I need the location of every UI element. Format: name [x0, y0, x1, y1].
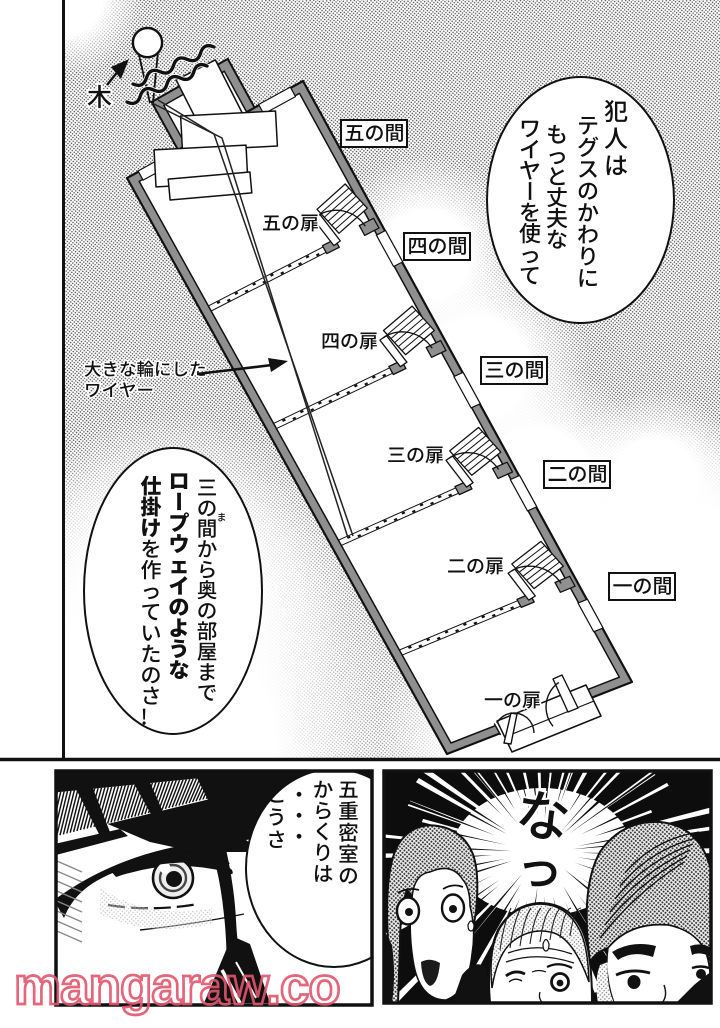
svg-text:mangaraw.co: mangaraw.co	[14, 957, 340, 1016]
